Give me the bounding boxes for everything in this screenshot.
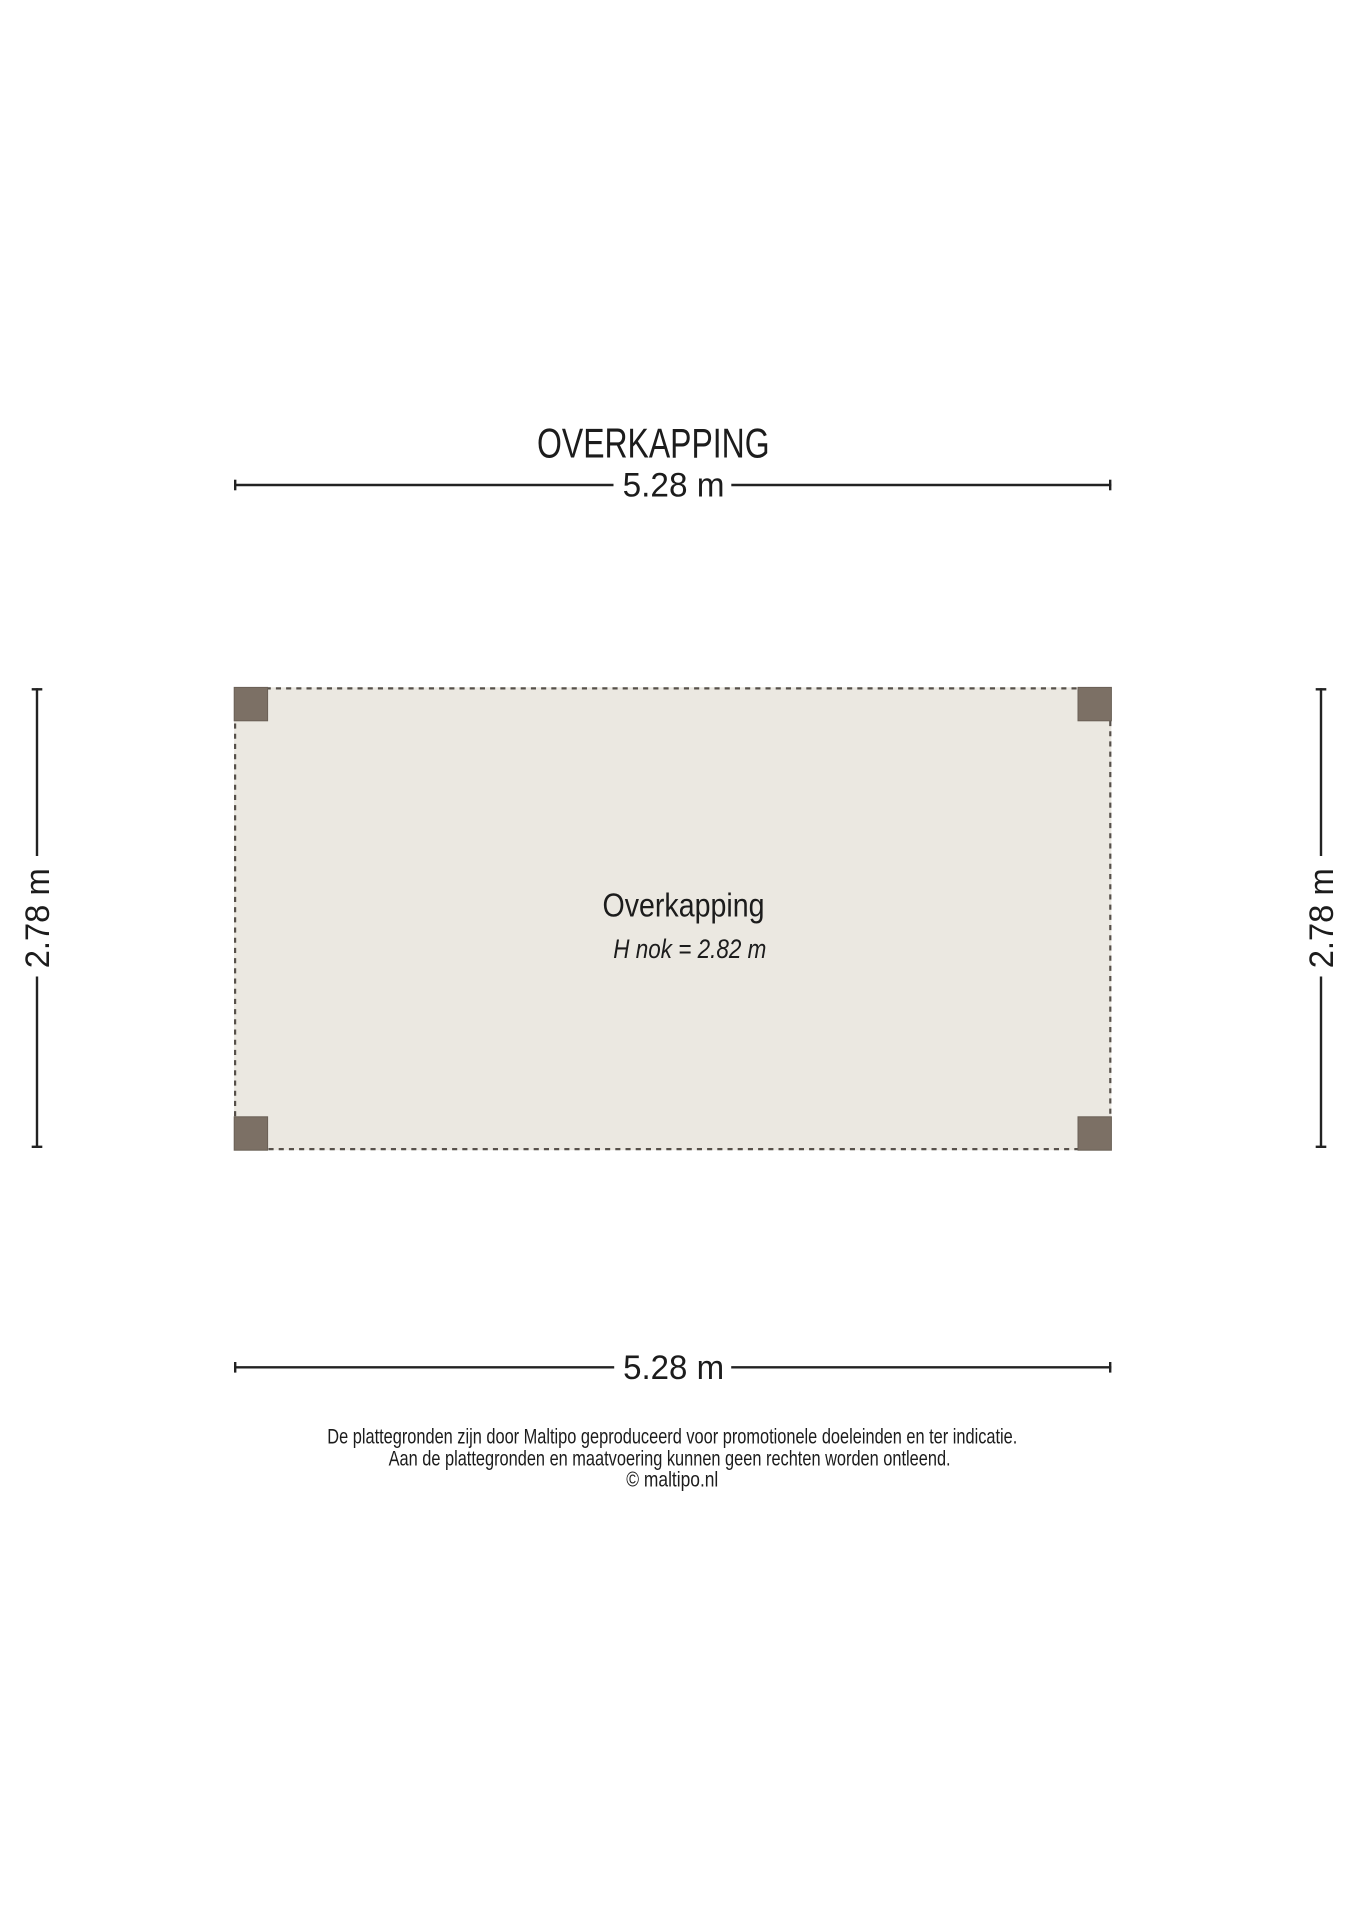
svg-text:2.78 m: 2.78 m	[19, 868, 57, 968]
svg-text:H nok = 2.82 m: H nok = 2.82 m	[613, 934, 766, 964]
svg-text:OVERKAPPING: OVERKAPPING	[537, 420, 770, 467]
svg-text:Aan de plattegronden en maatvo: Aan de plattegronden en maatvoering kunn…	[389, 1448, 951, 1471]
svg-text:5.28 m: 5.28 m	[623, 466, 725, 504]
svg-text:Overkapping: Overkapping	[603, 887, 765, 924]
svg-text:© maltipo.nl: © maltipo.nl	[626, 1468, 718, 1491]
svg-text:2.78 m: 2.78 m	[1303, 868, 1341, 968]
svg-text:5.28 m: 5.28 m	[623, 1349, 724, 1387]
svg-text:De plattegronden zijn door Mal: De plattegronden zijn door Maltipo gepro…	[327, 1425, 1017, 1448]
